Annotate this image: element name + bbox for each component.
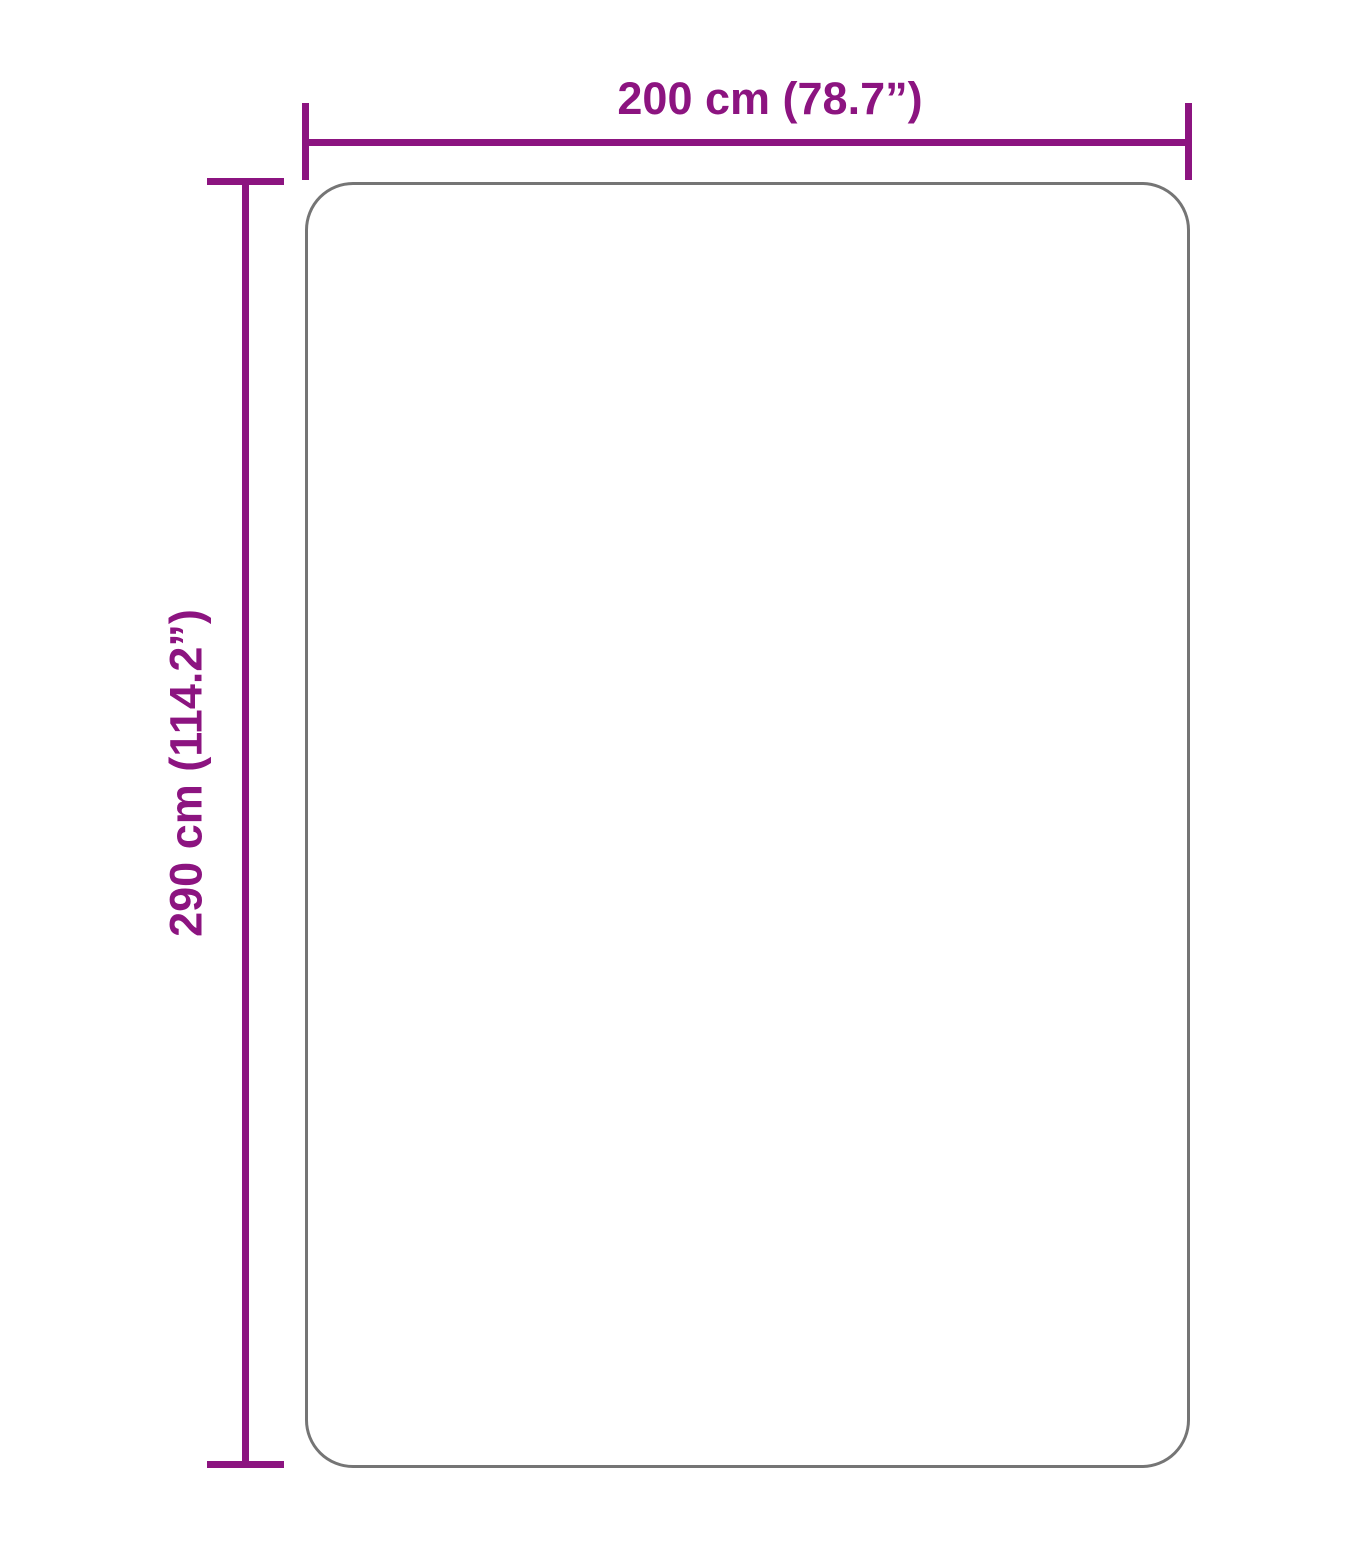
width-dimension-line: [305, 139, 1189, 146]
dimension-diagram: 200 cm (78.7”) 290 cm (114.2”): [0, 0, 1360, 1555]
height-dimension-label: 290 cm (114.2”): [164, 609, 209, 937]
width-dimension-cap-left: [302, 103, 309, 180]
height-dimension-line: [242, 178, 249, 1468]
height-dimension-cap-bottom: [207, 1461, 284, 1468]
width-dimension-cap-right: [1185, 103, 1192, 180]
height-dimension-cap-top: [207, 178, 284, 185]
rug-outline: [305, 182, 1190, 1468]
width-dimension-label: 200 cm (78.7”): [617, 76, 922, 121]
